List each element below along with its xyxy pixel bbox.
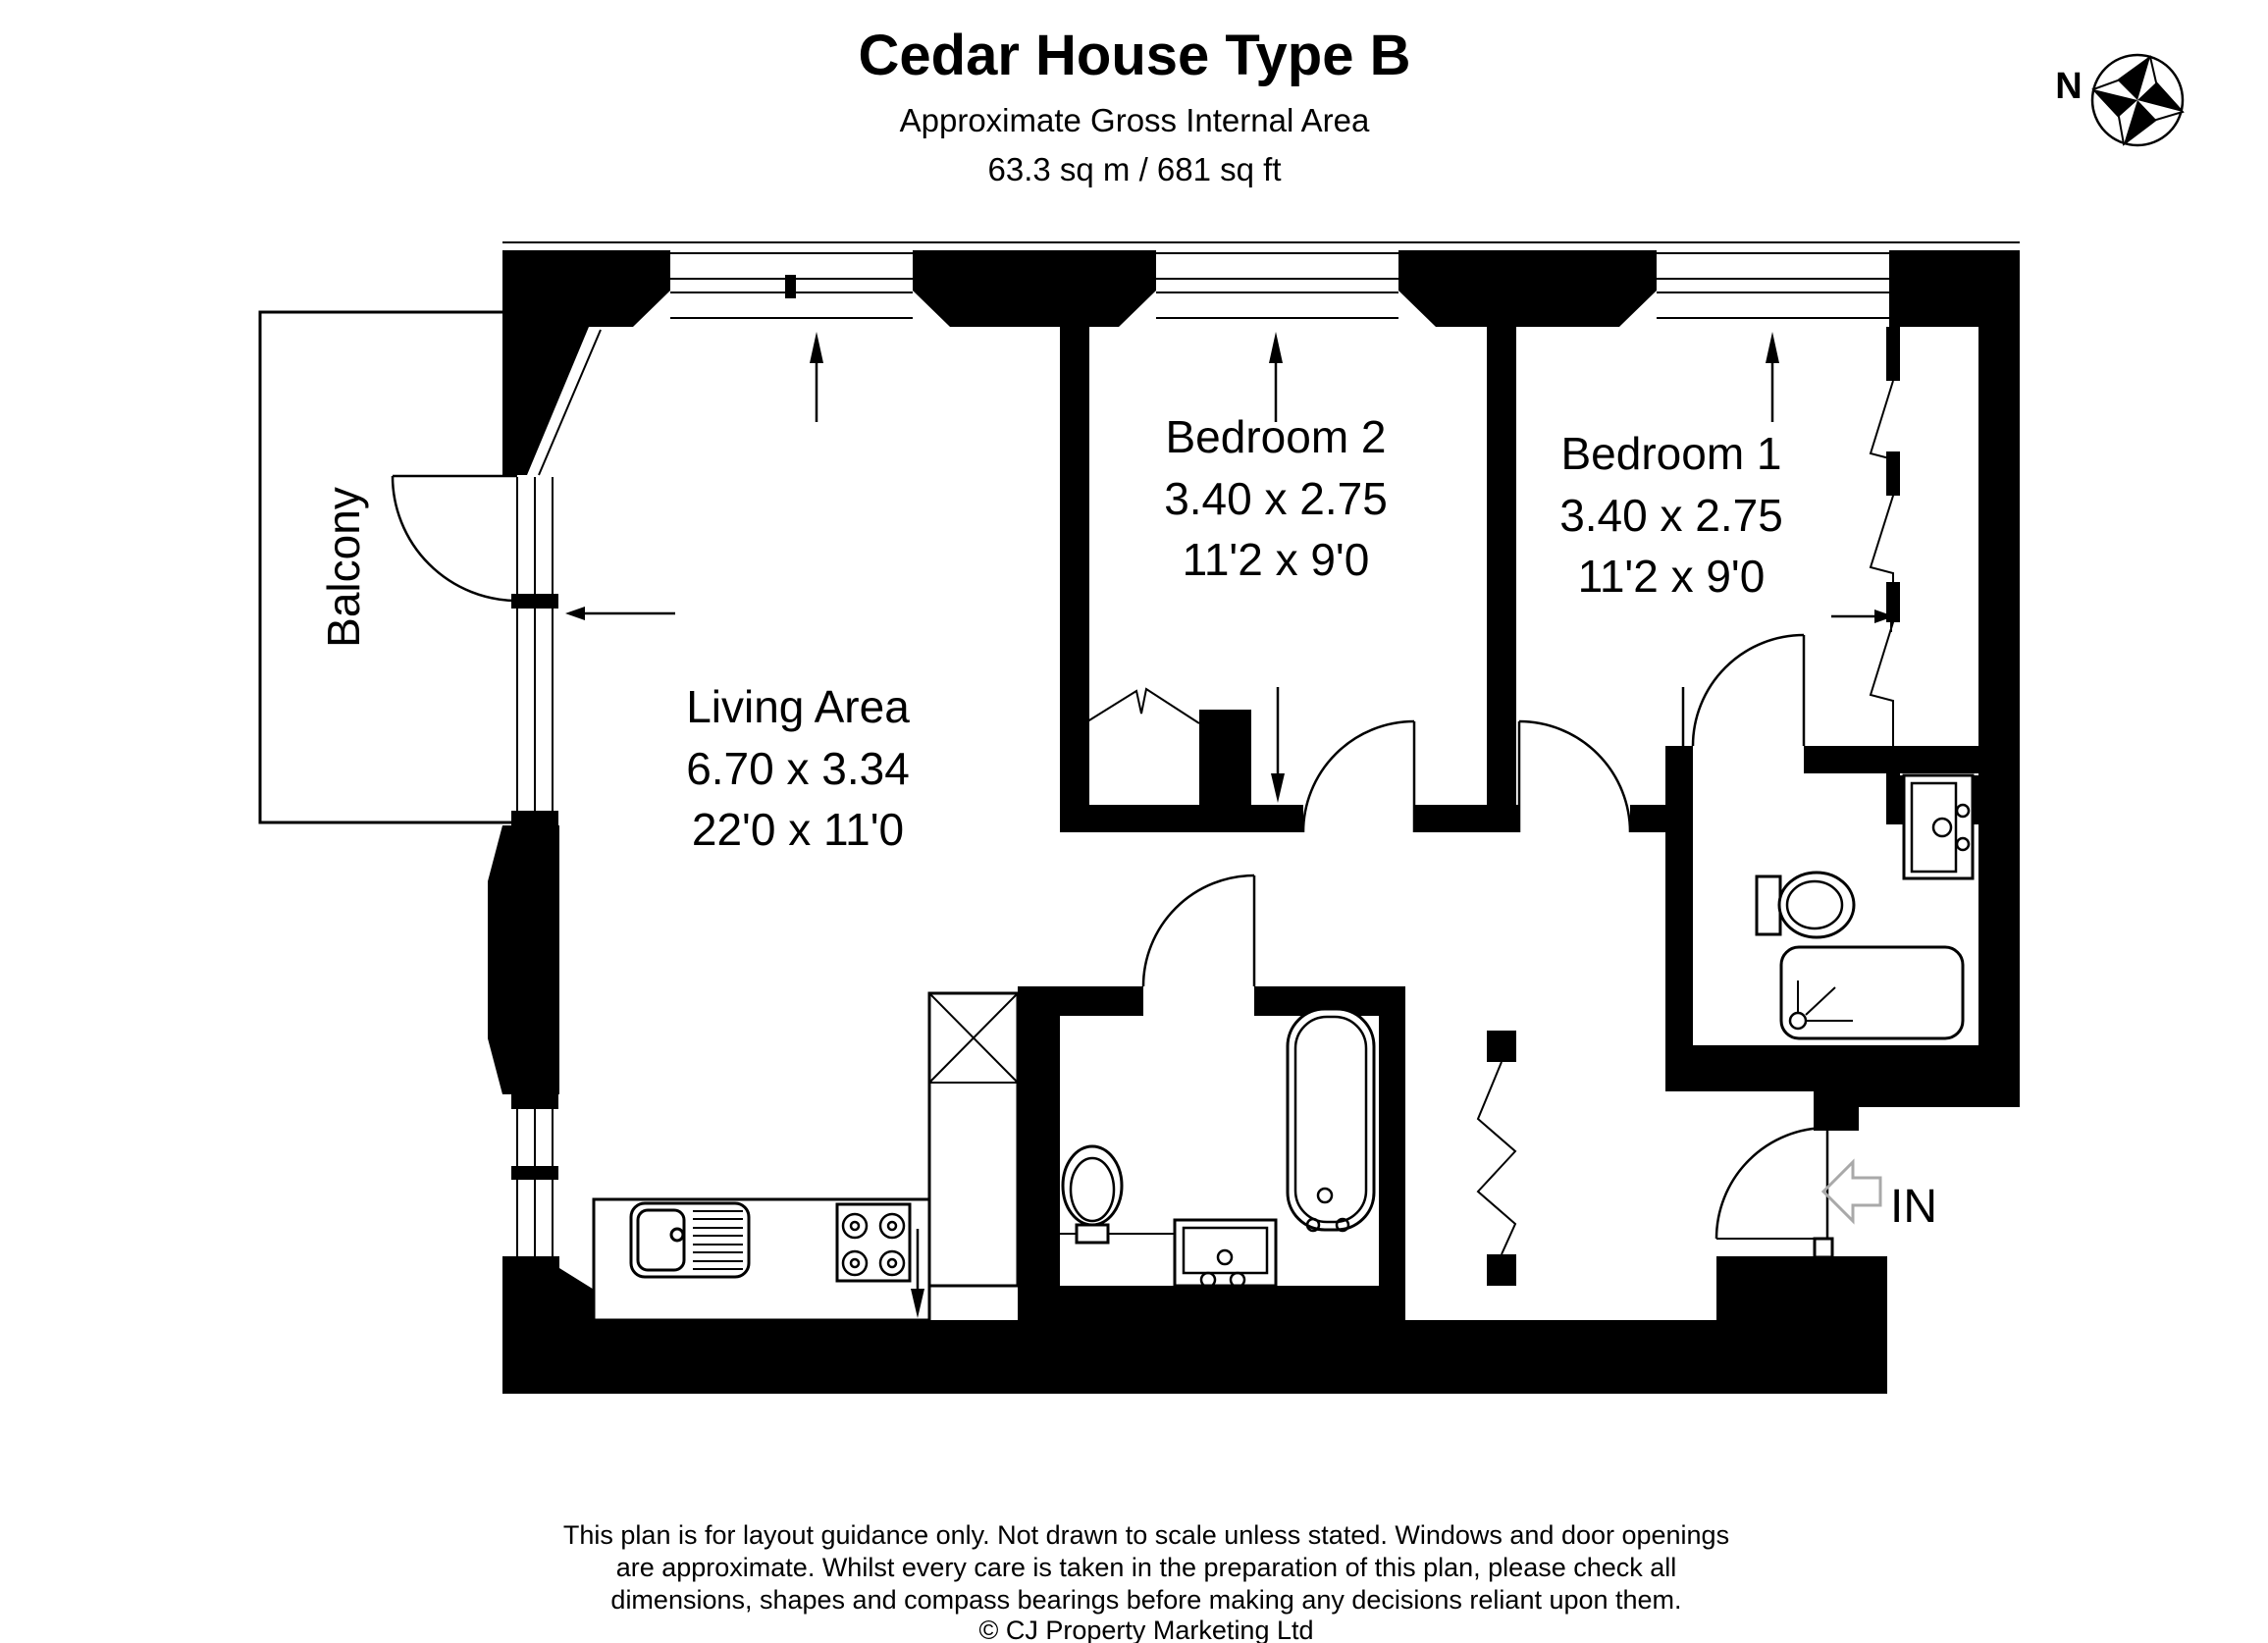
threshold-sill: [1815, 1239, 1832, 1257]
copyright-label: © CJ Property Marketing Ltd: [978, 1616, 1313, 1643]
closet-stub-top: [1487, 1031, 1516, 1062]
wall-ensuite-top: [1804, 746, 1978, 773]
bedroom2-imperial: 11'2 x 9'0: [1183, 534, 1370, 585]
arrow-down-head: [1271, 773, 1285, 803]
bedroom1-wardrobe-zigzag: [1871, 381, 1893, 771]
wall-ensuite-left: [1665, 773, 1693, 1091]
hall-closet-zigzag: [1478, 1062, 1515, 1254]
bedroom2-wardrobe-front: [1084, 689, 1199, 723]
toilet-tank: [1757, 876, 1780, 934]
shower-outline: [1781, 947, 1963, 1038]
wall-bathroom-bottom: [1018, 1286, 1405, 1320]
wall-entry-stub: [1814, 1091, 1859, 1131]
ensuite-toilet-icon: [1757, 873, 1854, 937]
arrow-left-head: [565, 607, 585, 620]
closet-stub-bottom: [1487, 1254, 1516, 1286]
wall-living-bedroom2-divider: [1060, 327, 1089, 832]
wall-left-tick-2: [511, 811, 558, 825]
basin-outline: [1175, 1220, 1276, 1286]
kitchen: [594, 1199, 929, 1320]
wall-top-mid-pier-2: [1398, 250, 1657, 327]
storage-cupboard: [929, 993, 1018, 1286]
balcony-outline-group: [260, 312, 530, 822]
compass-north-label: N: [2055, 66, 2082, 107]
wall-left-tick-3: [511, 1094, 558, 1109]
compass-icon: N: [2055, 55, 2183, 145]
ensuite: [1757, 775, 1973, 1038]
bedroom1-door: [1519, 721, 1630, 832]
door-swing-arc: [1143, 875, 1254, 986]
wall-bathroom-top-a: [1040, 986, 1143, 1016]
wall-right: [1978, 327, 2020, 1091]
door-swing-arc: [1716, 1128, 1827, 1239]
wardrobe-stub-left: [1067, 710, 1084, 723]
door-swing-arc: [1519, 721, 1630, 832]
bathroom-door: [1143, 875, 1254, 986]
door-swing-arc: [393, 476, 517, 601]
wall-bathroom-left: [1018, 986, 1060, 1286]
window-top-bedroom1: [1657, 253, 1889, 318]
wall-entry-top-strip: [1859, 1091, 2020, 1107]
ensuite-door: [1693, 635, 1804, 746]
bedroom2-door: [1303, 721, 1414, 832]
wall-left-tick-4: [511, 1166, 558, 1180]
basin-outline: [1904, 775, 1973, 878]
wall-hall-seg2: [1414, 805, 1519, 832]
wall-entry-left-pad: [1716, 1256, 1791, 1394]
wall-left-tick-1: [511, 594, 558, 609]
living-area-label: Living Area: [686, 681, 910, 732]
door-swing-arc: [1303, 721, 1414, 832]
balcony-door: [393, 476, 517, 601]
bedroom2-metric: 3.40 x 2.75: [1164, 473, 1388, 524]
wall-hall-seg1: [1089, 805, 1303, 832]
entrance-label: IN: [1890, 1181, 1937, 1233]
toilet-base: [1077, 1225, 1108, 1243]
wall-left-upper: [502, 327, 589, 475]
arrow-up-head: [1269, 332, 1283, 363]
wall-top-left-pier: [502, 250, 670, 327]
wall-entry-corner: [1791, 1256, 1887, 1394]
arrow-up-head: [1766, 332, 1779, 363]
entrance-door: [1716, 1128, 1832, 1257]
entrance-arrow-icon: [1823, 1162, 1880, 1221]
wall-bedroom2-pier: [1199, 710, 1251, 827]
page-title: Cedar House Type B: [859, 24, 1411, 87]
door-swing-arc: [1693, 635, 1804, 746]
bathtub-icon: [1288, 1009, 1374, 1231]
wall-bedroom2-bedroom1-divider: [1487, 327, 1516, 832]
ensuite-basin-icon: [1904, 775, 1973, 878]
bathroom: [1060, 1009, 1374, 1287]
disclaimer-line3: dimensions, shapes and compass bearings …: [610, 1585, 1681, 1615]
balcony-outline: [260, 312, 530, 822]
balcony-label: Balcony: [318, 487, 369, 648]
zigzag-stub-4: [1886, 771, 1900, 824]
bedroom1-metric: 3.40 x 2.75: [1559, 490, 1783, 541]
floorplan-page: N Cedar House Type B Approximate Gross I…: [0, 0, 2268, 1643]
basin-icon: [1175, 1220, 1276, 1287]
toilet-icon: [1063, 1146, 1122, 1243]
kitchen-tap-icon: [671, 1229, 683, 1241]
living-area-imperial: 22'0 x 11'0: [692, 804, 904, 855]
page-area: 63.3 sq m / 681 sq ft: [988, 151, 1282, 187]
bedroom1-label: Bedroom 1: [1560, 428, 1781, 479]
wall-top-mid-pier-1: [913, 250, 1156, 327]
arrow-up-head: [810, 332, 823, 363]
window-top-bedroom2: [1156, 253, 1398, 318]
floorplan-canvas: N Cedar House Type B Approximate Gross I…: [0, 0, 2268, 1643]
bedroom1-imperial: 11'2 x 9'0: [1578, 551, 1766, 602]
zigzag-stub-1: [1886, 327, 1900, 381]
wall-left-pier: [488, 825, 559, 1094]
wall-ensuite-bottom: [1665, 1045, 2020, 1091]
wall-bathroom-right: [1379, 986, 1405, 1286]
page-subtitle: Approximate Gross Internal Area: [900, 102, 1370, 138]
disclaimer-line2: are approximate. Whilst every care is ta…: [616, 1553, 1677, 1582]
bedroom2-label: Bedroom 2: [1165, 411, 1386, 462]
window-mullion: [785, 275, 796, 298]
window-top-living: [670, 253, 913, 318]
living-area-metric: 6.70 x 3.34: [686, 743, 910, 794]
wall-bottom: [502, 1320, 1791, 1394]
disclaimer-line1: This plan is for layout guidance only. N…: [563, 1520, 1729, 1550]
shower-tray-icon: [1781, 947, 1963, 1038]
wall-top-right: [1889, 250, 2020, 327]
